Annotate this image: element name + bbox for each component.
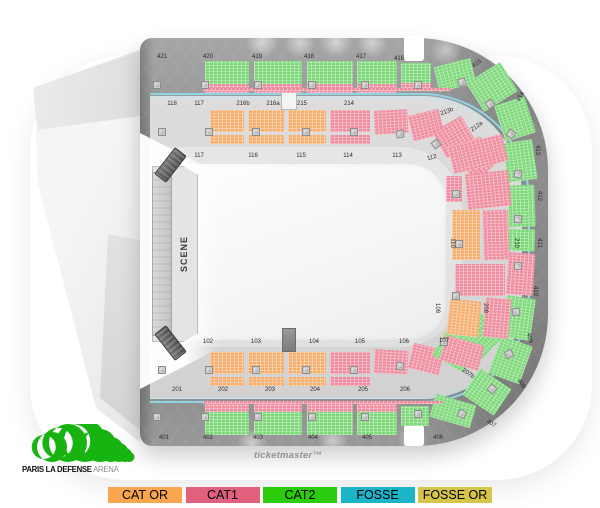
seat-section[interactable] bbox=[482, 210, 510, 261]
section-label: 411 bbox=[536, 238, 542, 248]
stair-post bbox=[153, 81, 161, 89]
seat-section[interactable] bbox=[401, 63, 431, 83]
seat-section[interactable] bbox=[307, 404, 353, 412]
stair-post bbox=[254, 81, 262, 89]
seat-section[interactable] bbox=[452, 210, 480, 260]
stair-post bbox=[201, 413, 209, 421]
section-label: 412 bbox=[536, 191, 542, 201]
stage-structure bbox=[152, 172, 172, 336]
stair-post bbox=[395, 129, 404, 138]
stair-post bbox=[302, 128, 310, 136]
seat-section[interactable] bbox=[330, 377, 370, 386]
stair-post bbox=[395, 361, 404, 370]
seat-section[interactable] bbox=[288, 377, 326, 386]
seat-section[interactable] bbox=[210, 352, 244, 374]
section-label: 418 bbox=[304, 54, 314, 60]
stair-post bbox=[350, 366, 358, 374]
section-label: 115 bbox=[296, 153, 306, 159]
seat-section[interactable] bbox=[205, 61, 249, 84]
section-label: 117 bbox=[194, 153, 204, 159]
stair-post bbox=[361, 81, 369, 89]
seat-section[interactable] bbox=[446, 176, 462, 202]
section-label: 417 bbox=[356, 54, 366, 60]
section-label: 103 bbox=[251, 339, 261, 345]
stair-post bbox=[252, 128, 260, 136]
section-label: 216a bbox=[266, 101, 279, 107]
section-label: 214 bbox=[344, 101, 354, 107]
seat-section[interactable] bbox=[330, 135, 370, 144]
vomitory-notch-top bbox=[404, 36, 424, 61]
section-label: 113 bbox=[392, 153, 402, 159]
section-label: 106 bbox=[399, 339, 409, 345]
stair-post bbox=[350, 128, 358, 136]
section-label: 419 bbox=[252, 54, 262, 60]
section-label: 201 bbox=[172, 387, 182, 393]
section-label: 421 bbox=[157, 54, 167, 60]
stair-post bbox=[361, 413, 369, 421]
stair-post bbox=[252, 366, 260, 374]
section-label: 410 bbox=[532, 286, 538, 296]
seat-section[interactable] bbox=[205, 404, 249, 412]
seat-section[interactable] bbox=[254, 404, 302, 412]
section-label: 204 bbox=[310, 387, 320, 393]
section-label: 108 bbox=[434, 303, 440, 313]
section-label: 118 bbox=[167, 101, 177, 107]
stair-post bbox=[308, 413, 316, 421]
section-label: 406 bbox=[433, 435, 443, 441]
legend-item-cat-or: CAT OR bbox=[108, 487, 182, 503]
legend-item-cat2: CAT2 bbox=[263, 487, 337, 503]
venue-name-bold: PARIS LA DEFENSE bbox=[22, 465, 92, 474]
seat-section[interactable] bbox=[288, 135, 326, 144]
section-label: 116 bbox=[248, 153, 258, 159]
section-label: 107 bbox=[439, 338, 449, 344]
seat-section[interactable] bbox=[357, 404, 397, 412]
legend-item-fosse: FOSSE bbox=[341, 487, 415, 503]
section-label: 405 bbox=[362, 435, 372, 441]
stair-post bbox=[158, 366, 166, 374]
section-label: 403 bbox=[253, 435, 263, 441]
seat-section[interactable] bbox=[455, 264, 505, 296]
stair-post bbox=[414, 410, 422, 418]
seat-section[interactable] bbox=[210, 135, 244, 144]
scene-label: SCENE bbox=[179, 236, 189, 272]
section-label: 413 bbox=[534, 145, 540, 155]
section-label: 215 bbox=[297, 101, 307, 107]
stair-post bbox=[514, 215, 523, 224]
seat-section[interactable] bbox=[508, 229, 536, 252]
section-label: 216b bbox=[236, 101, 249, 107]
stair-post bbox=[153, 413, 161, 421]
legend-item-cat1: CAT1 bbox=[186, 487, 260, 503]
section-label: 208 bbox=[482, 303, 488, 313]
section-label: 110 bbox=[449, 238, 455, 248]
seat-section[interactable] bbox=[210, 377, 244, 386]
entrance-tunnel-bottom bbox=[282, 328, 296, 352]
section-label: 420 bbox=[203, 54, 213, 60]
seat-section[interactable] bbox=[205, 412, 249, 435]
stair-post bbox=[513, 169, 522, 178]
stair-post bbox=[514, 262, 522, 270]
section-label: 206 bbox=[400, 387, 410, 393]
seat-map-canvas: SCENE 4214204194184174164154144134124114… bbox=[0, 0, 600, 508]
section-label: 114 bbox=[343, 153, 353, 159]
section-label: 402 bbox=[203, 435, 213, 441]
ticketmaster-watermark: ticketmaster™ bbox=[238, 450, 338, 461]
seat-section[interactable] bbox=[248, 377, 284, 386]
section-label: 102 bbox=[203, 339, 213, 345]
section-label: 117 bbox=[194, 101, 204, 107]
stair-post bbox=[205, 366, 213, 374]
section-label: 210 bbox=[513, 238, 519, 248]
stair-post bbox=[511, 307, 520, 316]
section-label: 401 bbox=[159, 435, 169, 441]
venue-logo-text: PARIS LA DEFENSE ARENA bbox=[22, 465, 137, 474]
stair-post bbox=[201, 81, 209, 89]
section-label: 404 bbox=[308, 435, 318, 441]
seat-section[interactable] bbox=[248, 135, 284, 144]
stair-post bbox=[205, 128, 213, 136]
section-label: 203 bbox=[265, 387, 275, 393]
seat-section[interactable] bbox=[464, 170, 512, 210]
stair-post bbox=[308, 81, 316, 89]
stair-post bbox=[302, 366, 310, 374]
stair-post bbox=[455, 240, 463, 248]
stair-post bbox=[414, 81, 422, 89]
section-label: 104 bbox=[309, 339, 319, 345]
section-label: 416 bbox=[394, 56, 404, 62]
section-label: 205 bbox=[358, 387, 368, 393]
section-label: 105 bbox=[355, 339, 365, 345]
section-label: 202 bbox=[218, 387, 228, 393]
stair-post bbox=[158, 128, 166, 136]
stair-post bbox=[452, 190, 460, 198]
seat-section[interactable] bbox=[210, 110, 244, 132]
seat-section[interactable] bbox=[446, 298, 482, 337]
legend-item-fosse-or: FOSSE OR bbox=[418, 487, 492, 503]
stair-post bbox=[452, 292, 460, 300]
seat-section[interactable] bbox=[506, 252, 536, 296]
seat-section[interactable] bbox=[203, 401, 443, 404]
vomitory-notch-bottom bbox=[404, 425, 424, 446]
stair-post bbox=[254, 413, 262, 421]
venue-name-light: ARENA bbox=[93, 465, 118, 474]
